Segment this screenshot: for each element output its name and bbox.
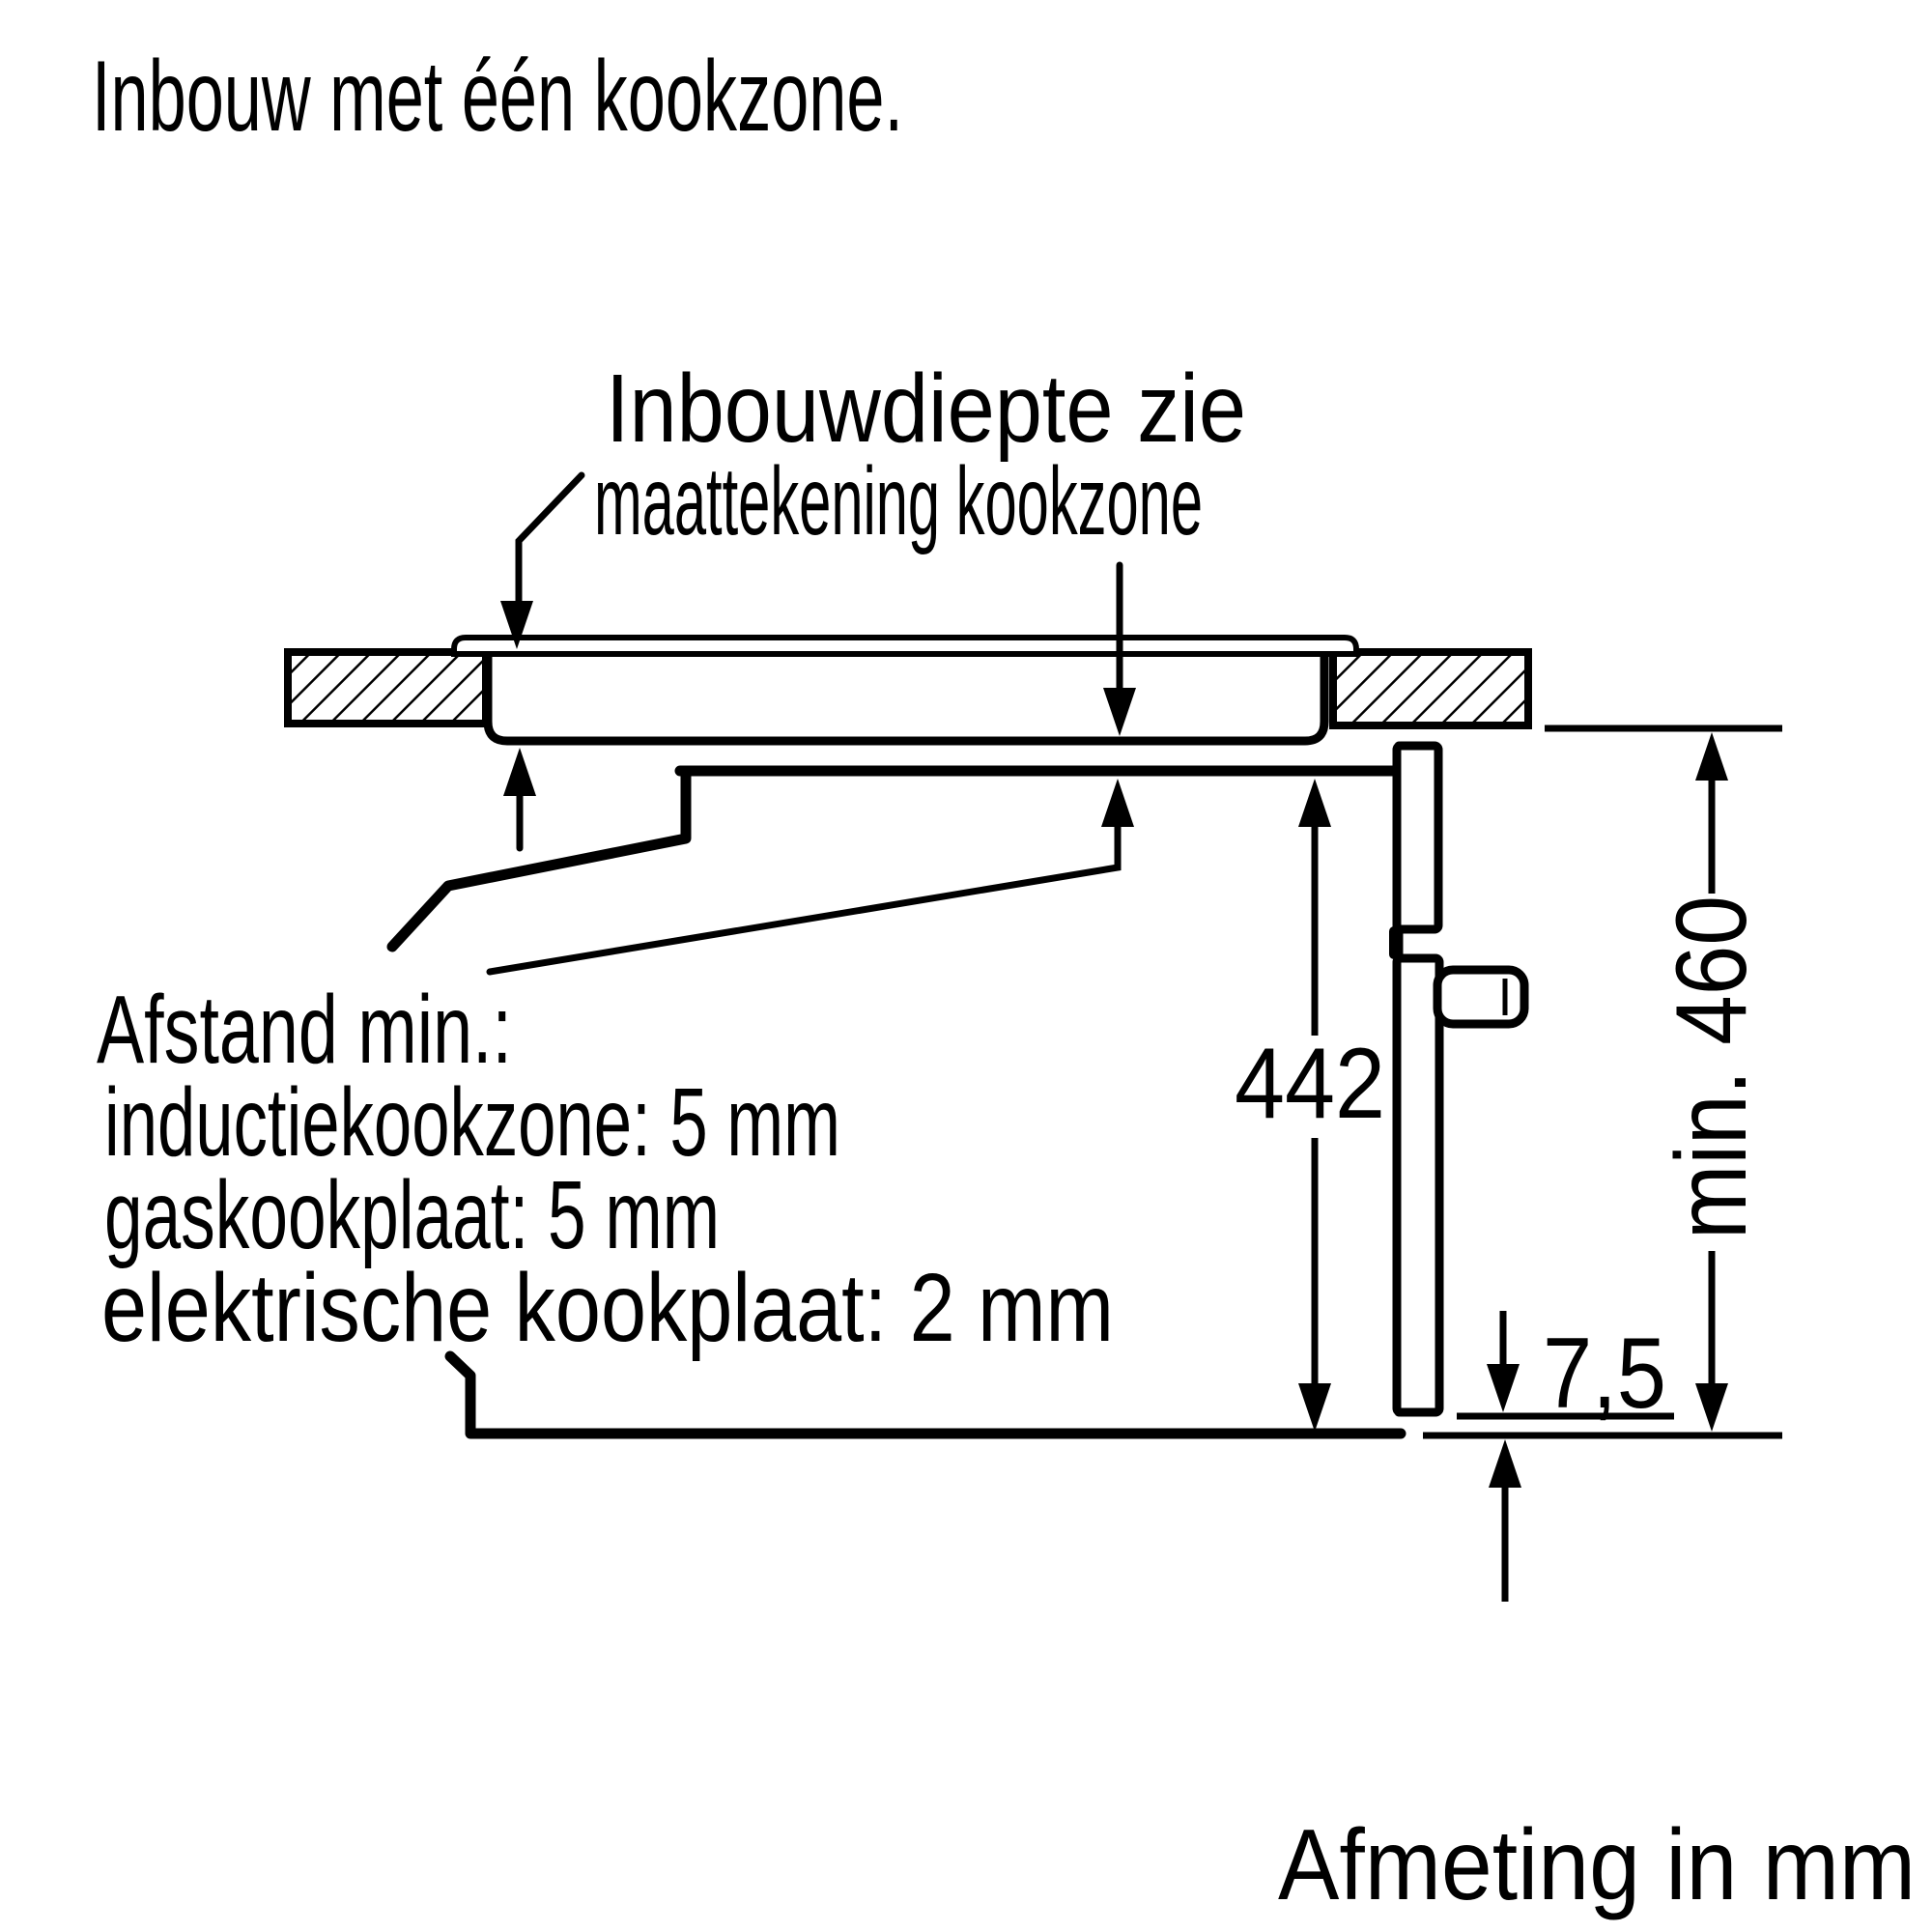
page-title: Inbouw met één kookzone. (92, 41, 903, 153)
clearance-note-line4: elektrische kookplaat: 2 mm (101, 1254, 1114, 1362)
dim-75-label: 7,5 (1543, 1318, 1666, 1430)
left-countertop-section (288, 652, 486, 724)
cooktop-glass (454, 638, 1356, 654)
oven-door (1397, 958, 1439, 1412)
dim-460-label: min. 460 (1656, 895, 1768, 1239)
installation-diagram: Inbouw met één kookzone. Inbouwdiepte zi… (0, 0, 1932, 1932)
cooktop-body (488, 652, 1324, 741)
right-countertop-section (1333, 652, 1528, 725)
oven-knob (1437, 970, 1524, 1024)
control-panel (1397, 746, 1438, 929)
technical-drawing: Inbouw met één kookzone. Inbouwdiepte zi… (0, 0, 1932, 1932)
units-note: Afmeting in mm (1278, 1809, 1916, 1921)
background (0, 0, 1932, 1932)
depth-note-line2: maattekening kookzone (594, 447, 1203, 555)
dim-442-label: 442 (1235, 1028, 1385, 1140)
